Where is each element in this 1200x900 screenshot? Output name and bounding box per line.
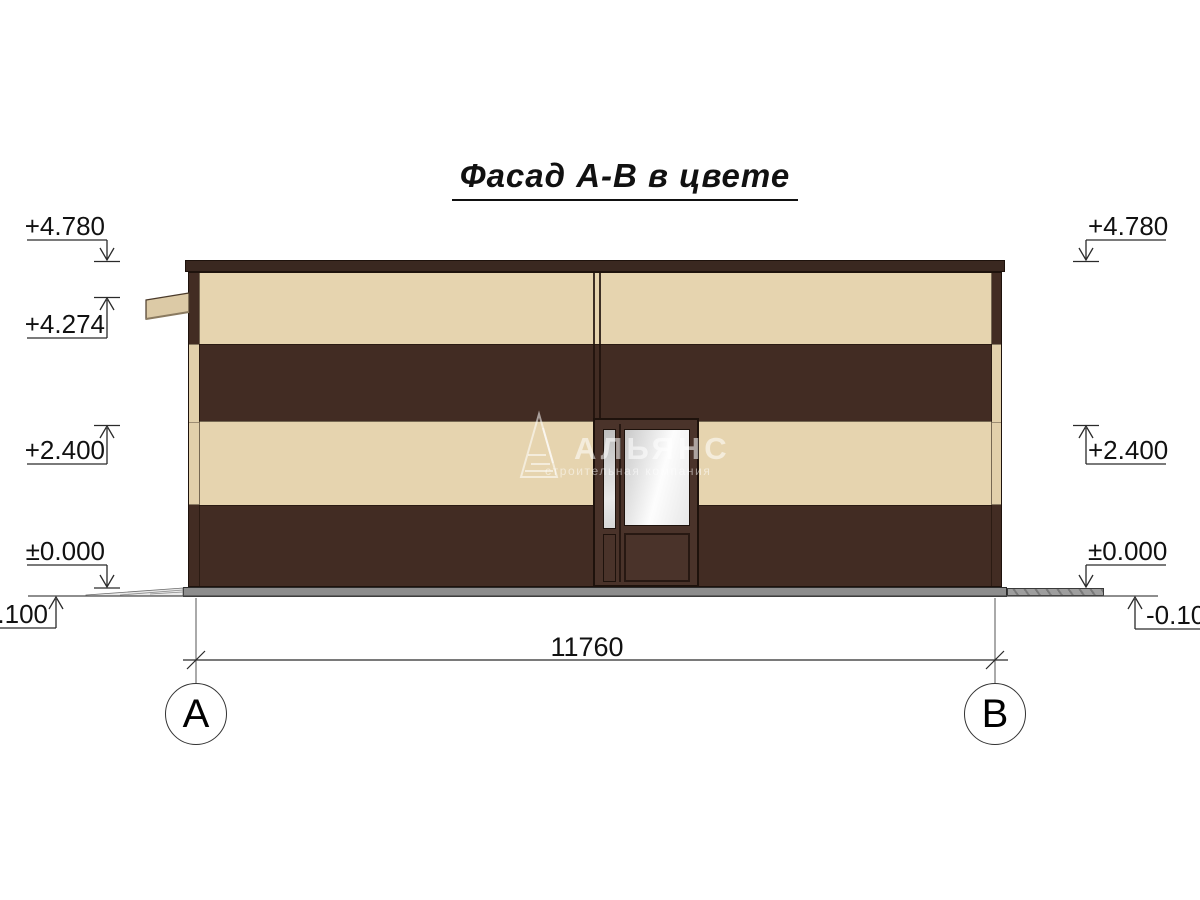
canopy-beam xyxy=(146,293,189,319)
elevation-label-left-0000: ±0.000 xyxy=(15,538,105,564)
leader-left-0000 xyxy=(27,565,120,588)
annotation-linework-layer xyxy=(0,0,1200,900)
elevation-label-right-4780: +4.780 xyxy=(1088,213,1178,239)
leader-right-4780 xyxy=(1073,240,1166,262)
leader-left-4780 xyxy=(27,240,120,262)
elevation-label-right-m0100: -0.100 xyxy=(1146,602,1200,628)
elevation-label-left-m0100: -0.100 xyxy=(0,601,48,627)
ground-wedge-left xyxy=(86,588,183,596)
elevation-label-right-0000: ±0.000 xyxy=(1088,538,1178,564)
dimension-value: 11760 xyxy=(520,632,654,663)
elevation-label-left-4274: +4.274 xyxy=(15,311,105,337)
facade-drawing-canvas: Фасад А-В в цвете xyxy=(0,0,1200,900)
elevation-label-left-4780: +4.780 xyxy=(15,213,105,239)
elevation-label-right-2400: +2.400 xyxy=(1088,437,1178,463)
axis-bubble-b: В xyxy=(964,683,1026,745)
axis-label-b: В xyxy=(982,692,1009,737)
elevation-label-left-2400: +2.400 xyxy=(15,437,105,463)
axis-label-a: А xyxy=(183,692,210,737)
leader-right-0000 xyxy=(1079,565,1166,587)
axis-bubble-a: А xyxy=(165,683,227,745)
